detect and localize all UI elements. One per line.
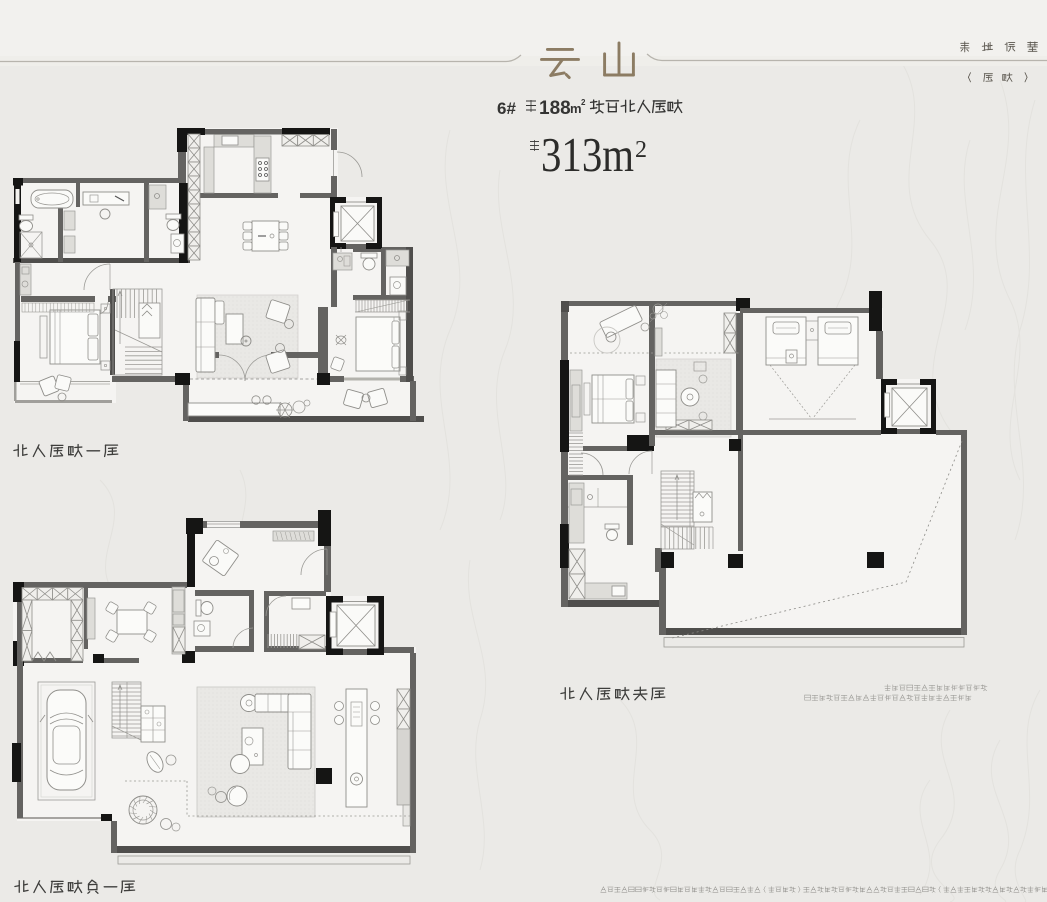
svg-text:2: 2 (635, 137, 647, 163)
svg-text:2: 2 (581, 98, 586, 107)
svg-text:m: m (570, 101, 582, 116)
svg-text:6#: 6# (497, 99, 516, 118)
svg-text:188: 188 (539, 98, 571, 119)
svg-text:313m: 313m (541, 127, 634, 182)
